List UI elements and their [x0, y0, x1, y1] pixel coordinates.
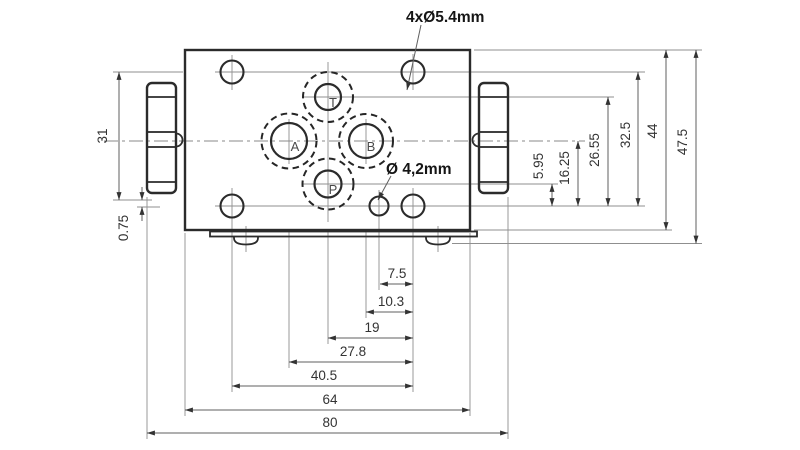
port-p-label: P	[329, 182, 338, 197]
dim-label-32-5: 32.5	[618, 122, 633, 148]
dim-label-31: 31	[95, 128, 110, 143]
dim-label-80: 80	[322, 415, 337, 430]
port-t-label: T	[329, 95, 337, 110]
tab-left-outline	[147, 83, 176, 193]
bottom-strip	[210, 232, 477, 237]
port-a-label: A	[291, 139, 300, 154]
dim-label-64: 64	[322, 392, 338, 407]
dimension-lines	[119, 50, 696, 433]
callout-orifice: Ø 4,2mm	[386, 161, 451, 178]
dim-label-16-25: 16.25	[557, 151, 572, 185]
dim-label-19: 19	[364, 320, 379, 335]
tab-left-band	[147, 132, 176, 147]
clamp-tab-right	[473, 83, 508, 193]
valve-subplate-drawing: A B T P 31 0.75 5.95 16.25 26.55 32.5 44	[0, 0, 800, 450]
dim-label-5-95: 5.95	[531, 153, 546, 179]
callout-mounting-holes: 4xØ5.4mm	[406, 9, 484, 26]
leader-mounting-holes	[407, 25, 421, 90]
technical-drawing-canvas: A B T P 31 0.75 5.95 16.25 26.55 32.5 44	[0, 0, 800, 450]
valve-body	[185, 50, 477, 245]
leader-orifice	[378, 176, 391, 200]
dim-label-47-5: 47.5	[675, 129, 690, 155]
dim-label-40-5: 40.5	[311, 368, 337, 383]
tab-right-band	[479, 132, 508, 147]
dim-label-44: 44	[645, 123, 660, 139]
dim-label-0-75: 0.75	[116, 215, 131, 241]
port-b-label: B	[367, 139, 376, 154]
dim-label-26-55: 26.55	[587, 133, 602, 167]
dim-label-7-5: 7.5	[388, 266, 407, 281]
extension-lines	[113, 50, 702, 439]
body-outline	[185, 50, 470, 230]
dim-label-27-8: 27.8	[340, 344, 366, 359]
tab-right-outline	[479, 83, 508, 193]
clamp-tab-left	[147, 83, 183, 193]
dim-label-10-3: 10.3	[378, 294, 404, 309]
